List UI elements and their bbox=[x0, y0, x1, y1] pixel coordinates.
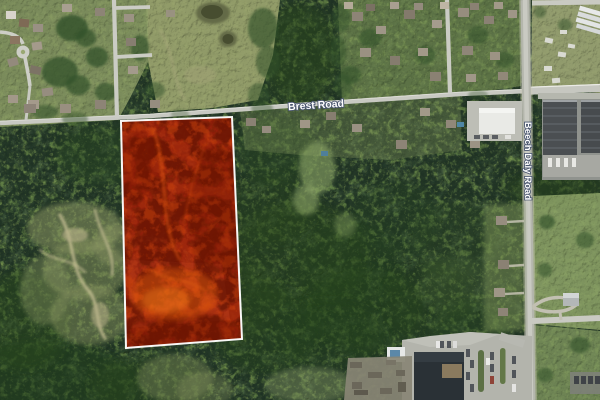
svg-text:Beech Daly Road: Beech Daly Road bbox=[522, 122, 533, 201]
